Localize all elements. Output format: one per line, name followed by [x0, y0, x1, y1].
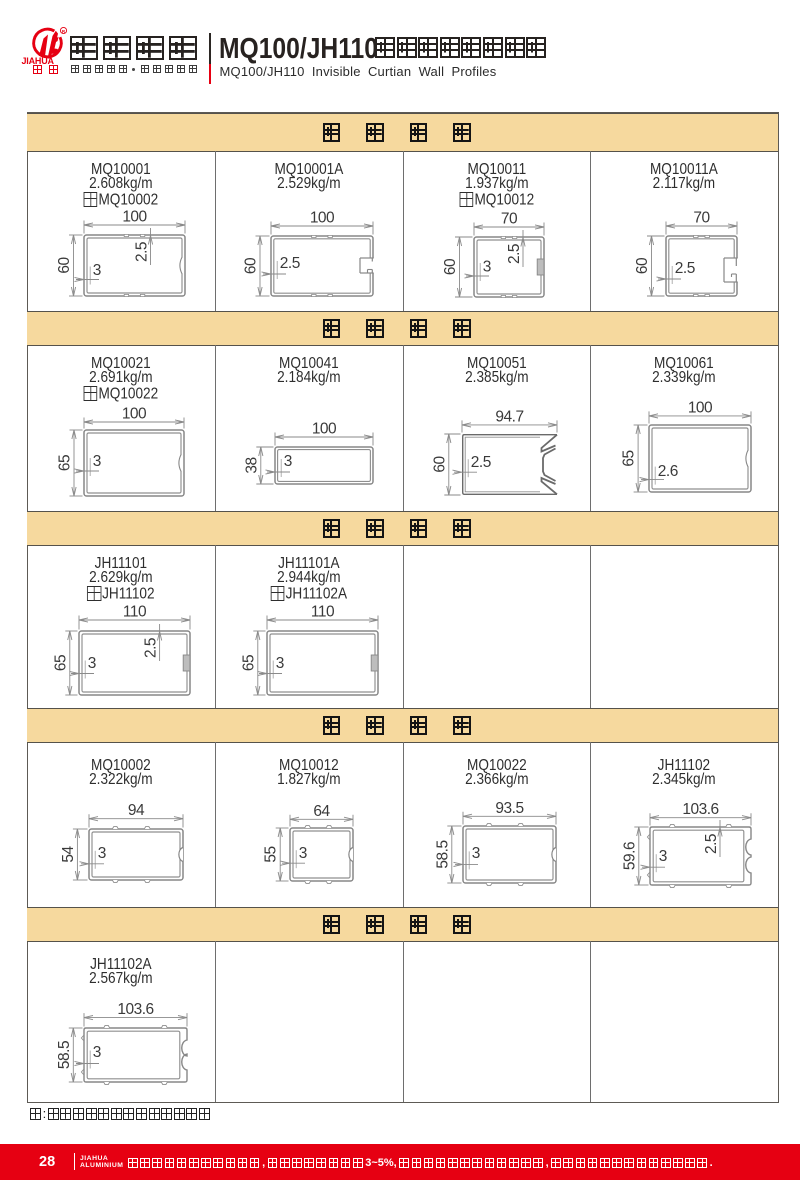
- svg-text:60: 60: [56, 257, 73, 274]
- svg-text:3: 3: [93, 1044, 101, 1061]
- svg-text:2.5: 2.5: [134, 242, 151, 262]
- svg-text:3: 3: [276, 655, 284, 672]
- svg-text:2.6: 2.6: [658, 463, 678, 480]
- svg-text:100: 100: [122, 209, 147, 226]
- svg-text:65: 65: [57, 455, 74, 471]
- svg-text:103.6: 103.6: [117, 1001, 153, 1018]
- svg-text:3: 3: [93, 262, 101, 279]
- svg-text:100: 100: [688, 399, 713, 416]
- svg-text:2.5: 2.5: [675, 260, 695, 277]
- svg-text:60: 60: [243, 257, 260, 274]
- svg-text:60: 60: [442, 258, 459, 275]
- svg-text:64: 64: [313, 803, 330, 820]
- svg-text:94.7: 94.7: [495, 408, 523, 425]
- svg-text:100: 100: [310, 210, 335, 227]
- svg-text:59.6: 59.6: [621, 842, 638, 870]
- svg-text:38: 38: [243, 457, 260, 473]
- svg-text:100: 100: [122, 406, 147, 423]
- svg-text:3: 3: [284, 453, 292, 470]
- svg-text:70: 70: [693, 210, 710, 227]
- svg-text:58.5: 58.5: [434, 840, 451, 868]
- svg-text:3: 3: [93, 453, 101, 470]
- svg-text:2.5: 2.5: [280, 255, 300, 272]
- svg-text:93.5: 93.5: [495, 800, 523, 817]
- svg-text:65: 65: [52, 655, 69, 671]
- svg-text:70: 70: [501, 211, 518, 228]
- svg-text:2.5: 2.5: [703, 834, 720, 854]
- svg-text:65: 65: [240, 655, 257, 671]
- svg-text:3: 3: [659, 848, 667, 865]
- svg-text:60: 60: [431, 456, 448, 473]
- svg-text:94: 94: [128, 802, 145, 819]
- svg-text:58.5: 58.5: [56, 1041, 73, 1069]
- svg-text:3: 3: [88, 655, 96, 672]
- svg-text:55: 55: [263, 846, 280, 862]
- svg-text:110: 110: [311, 604, 335, 621]
- svg-text:3: 3: [483, 259, 491, 276]
- svg-text:100: 100: [312, 421, 337, 438]
- svg-text:110: 110: [123, 604, 147, 621]
- svg-text:2.5: 2.5: [506, 244, 523, 264]
- svg-text:3: 3: [299, 845, 307, 862]
- svg-text:54: 54: [60, 846, 77, 863]
- svg-text:2.5: 2.5: [471, 454, 491, 471]
- svg-text:103.6: 103.6: [682, 801, 718, 818]
- svg-text:3: 3: [98, 845, 106, 862]
- svg-text:60: 60: [634, 257, 651, 274]
- svg-text:65: 65: [621, 450, 638, 466]
- svg-text:3: 3: [472, 845, 480, 862]
- svg-text:2.5: 2.5: [143, 638, 160, 658]
